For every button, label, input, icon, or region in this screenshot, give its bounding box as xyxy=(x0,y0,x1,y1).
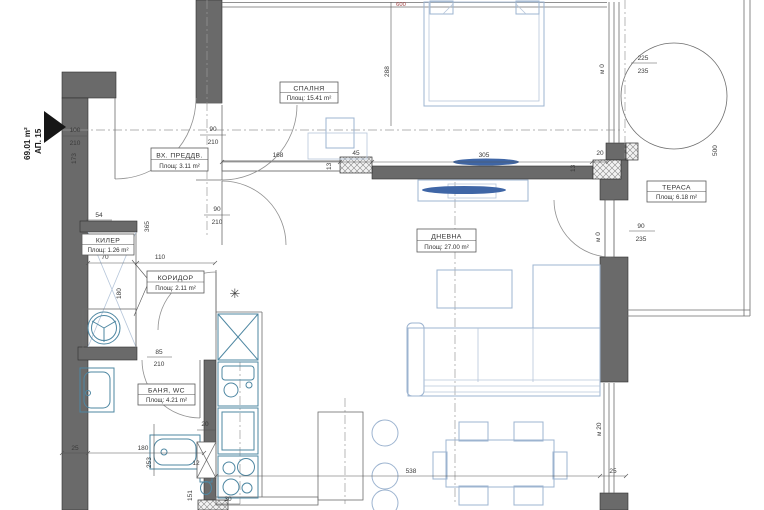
terrace-door-leaf xyxy=(605,200,614,257)
dim-terracedoor-90: 90 xyxy=(637,223,645,230)
tv-living xyxy=(422,186,506,194)
room-label-bath: БАНЯ, WC Площ: 4.21 m² xyxy=(138,384,195,405)
dim-25-right: 25 xyxy=(609,468,617,475)
dim-25-left: 25 xyxy=(71,445,79,452)
dim-538: 538 xyxy=(406,468,417,475)
room-label-corridor: КОРИДОР Площ: 2.11 m² xyxy=(147,271,204,293)
dim-13-right: 13 xyxy=(570,164,577,172)
room-label-closet: КИЛЕР Площ: 1.26 m² xyxy=(82,234,134,255)
dim-253: 253 xyxy=(146,457,153,468)
dining-table xyxy=(446,440,554,487)
dim-bathdoor-85: 85 xyxy=(155,349,163,356)
room-label-entry: ВХ. ПРЕДДВ. Площ: 3.11 m² xyxy=(151,148,208,171)
dim-168: 168 xyxy=(273,152,284,159)
dim-225: 225 xyxy=(638,55,649,62)
column-terrace xyxy=(626,143,638,160)
kitchen-unit xyxy=(218,408,258,454)
shaft xyxy=(197,442,216,478)
dim-305: 305 xyxy=(479,152,490,159)
room-area: Площ: 2.11 m² xyxy=(155,285,196,292)
bar-counter xyxy=(216,412,398,510)
dim-bedroomdoor-90: 90 xyxy=(209,126,217,133)
dim-600: 600 xyxy=(396,2,406,8)
axis-lines xyxy=(62,0,625,504)
floor-plan-page: ✳ 600 288 168 45 305 20 13 13 xyxy=(0,0,764,510)
dim-20-wall: 20 xyxy=(596,150,604,157)
room-name: СПАЛНЯ xyxy=(293,86,324,93)
dim-180-corridor: 180 xyxy=(116,288,123,299)
dim-365: 365 xyxy=(144,221,151,232)
dim-bathdoor-210: 210 xyxy=(154,361,165,368)
kitchen-unit-inner xyxy=(222,412,254,450)
dim-m0-top: м 0 xyxy=(599,64,606,74)
dimension-texts: 600 288 168 45 305 20 13 13 100 210 173 … xyxy=(70,2,719,503)
dim-235-top: 235 xyxy=(638,68,649,75)
kitchen-sink xyxy=(218,362,258,406)
thin-wall-bedroom-south xyxy=(222,161,340,171)
dim-30: 30 xyxy=(224,496,232,503)
floor-plan-canvas: ✳ 600 288 168 45 305 20 13 13 xyxy=(0,0,764,510)
room-name: ВХ. ПРЕДДВ. xyxy=(156,153,203,160)
dim-terracedoor-235: 235 xyxy=(636,236,647,243)
dim-livingdoor-210: 210 xyxy=(212,219,223,226)
room-label-bedroom: СПАЛНЯ Площ: 15.41 m² xyxy=(280,82,338,103)
sofa xyxy=(407,265,600,396)
doors xyxy=(115,98,614,418)
chair xyxy=(514,422,543,441)
room-name: ДНЕВНА xyxy=(431,234,461,241)
dim-173: 173 xyxy=(71,153,78,164)
dimension-lines xyxy=(60,2,657,504)
bed xyxy=(424,1,544,106)
dim-20-bath: 20 xyxy=(201,421,209,428)
wall-bedroom-living-divider xyxy=(372,166,593,179)
dim-13-left: 13 xyxy=(326,162,333,170)
room-name: ТЕРАСА xyxy=(662,185,691,192)
room-area: Площ: 15.41 m² xyxy=(287,95,332,102)
wall-closet-top xyxy=(80,221,137,232)
room-area: Площ: 3.11 m² xyxy=(159,163,200,170)
apartment-marker: АП. 15 69.01 m² xyxy=(23,111,66,160)
room-label-living: ДНЕВНА Площ: 27.00 m² xyxy=(417,229,476,252)
light-symbol: ✳ xyxy=(230,286,241,301)
wall-top-left xyxy=(62,72,116,98)
bar-stool xyxy=(372,420,398,446)
terrace-door-swing xyxy=(554,200,611,257)
room-name: КИЛЕР xyxy=(96,238,120,245)
dim-bedroomdoor-210: 210 xyxy=(208,139,219,146)
dim-288: 288 xyxy=(384,66,391,77)
room-label-terrace: ТЕРАСА Площ: 6.18 m² xyxy=(647,181,706,202)
room-area: Площ: 1.26 m² xyxy=(87,247,128,254)
room-name: КОРИДОР xyxy=(158,275,194,282)
wall-right-lower xyxy=(600,493,628,510)
room-area: Площ: 27.00 m² xyxy=(424,244,469,251)
chair xyxy=(553,452,567,479)
dim-12: 12 xyxy=(192,460,200,467)
wall-right-middle xyxy=(600,257,628,382)
chair xyxy=(459,422,488,441)
dim-entry-100: 100 xyxy=(70,127,81,134)
living-door-swing xyxy=(222,181,286,245)
apartment-area: 69.01 m² xyxy=(23,127,32,160)
wall-terrace-corner xyxy=(606,143,626,160)
dim-180-bottom: 180 xyxy=(138,445,149,452)
chair xyxy=(459,486,488,505)
dim-livingdoor-90: 90 xyxy=(213,206,221,213)
dim-151: 151 xyxy=(187,490,194,501)
dim-45: 45 xyxy=(352,150,360,157)
dim-m20: м 20 xyxy=(596,422,603,436)
washing-machine xyxy=(88,312,120,344)
coffee-table xyxy=(437,270,512,308)
wall-closet-bottom xyxy=(78,347,137,360)
bar-stool xyxy=(372,490,398,510)
dining-set xyxy=(433,422,567,505)
dim-m0-door: м 0 xyxy=(595,232,602,242)
chair xyxy=(514,486,543,505)
apartment-number: АП. 15 xyxy=(34,128,43,154)
dim-110: 110 xyxy=(155,254,166,261)
dim-entry-210: 210 xyxy=(70,140,81,147)
wall-bedroom-left-top xyxy=(196,0,222,103)
stove xyxy=(218,456,258,498)
room-area: Площ: 6.18 m² xyxy=(656,194,697,201)
chair xyxy=(433,452,447,479)
tv-cabinet-living xyxy=(418,180,528,201)
dim-500: 500 xyxy=(712,145,719,156)
room-name: БАНЯ, WC xyxy=(148,388,185,395)
room-area: Площ: 4.21 m² xyxy=(146,397,187,404)
dim-54: 54 xyxy=(95,212,103,219)
